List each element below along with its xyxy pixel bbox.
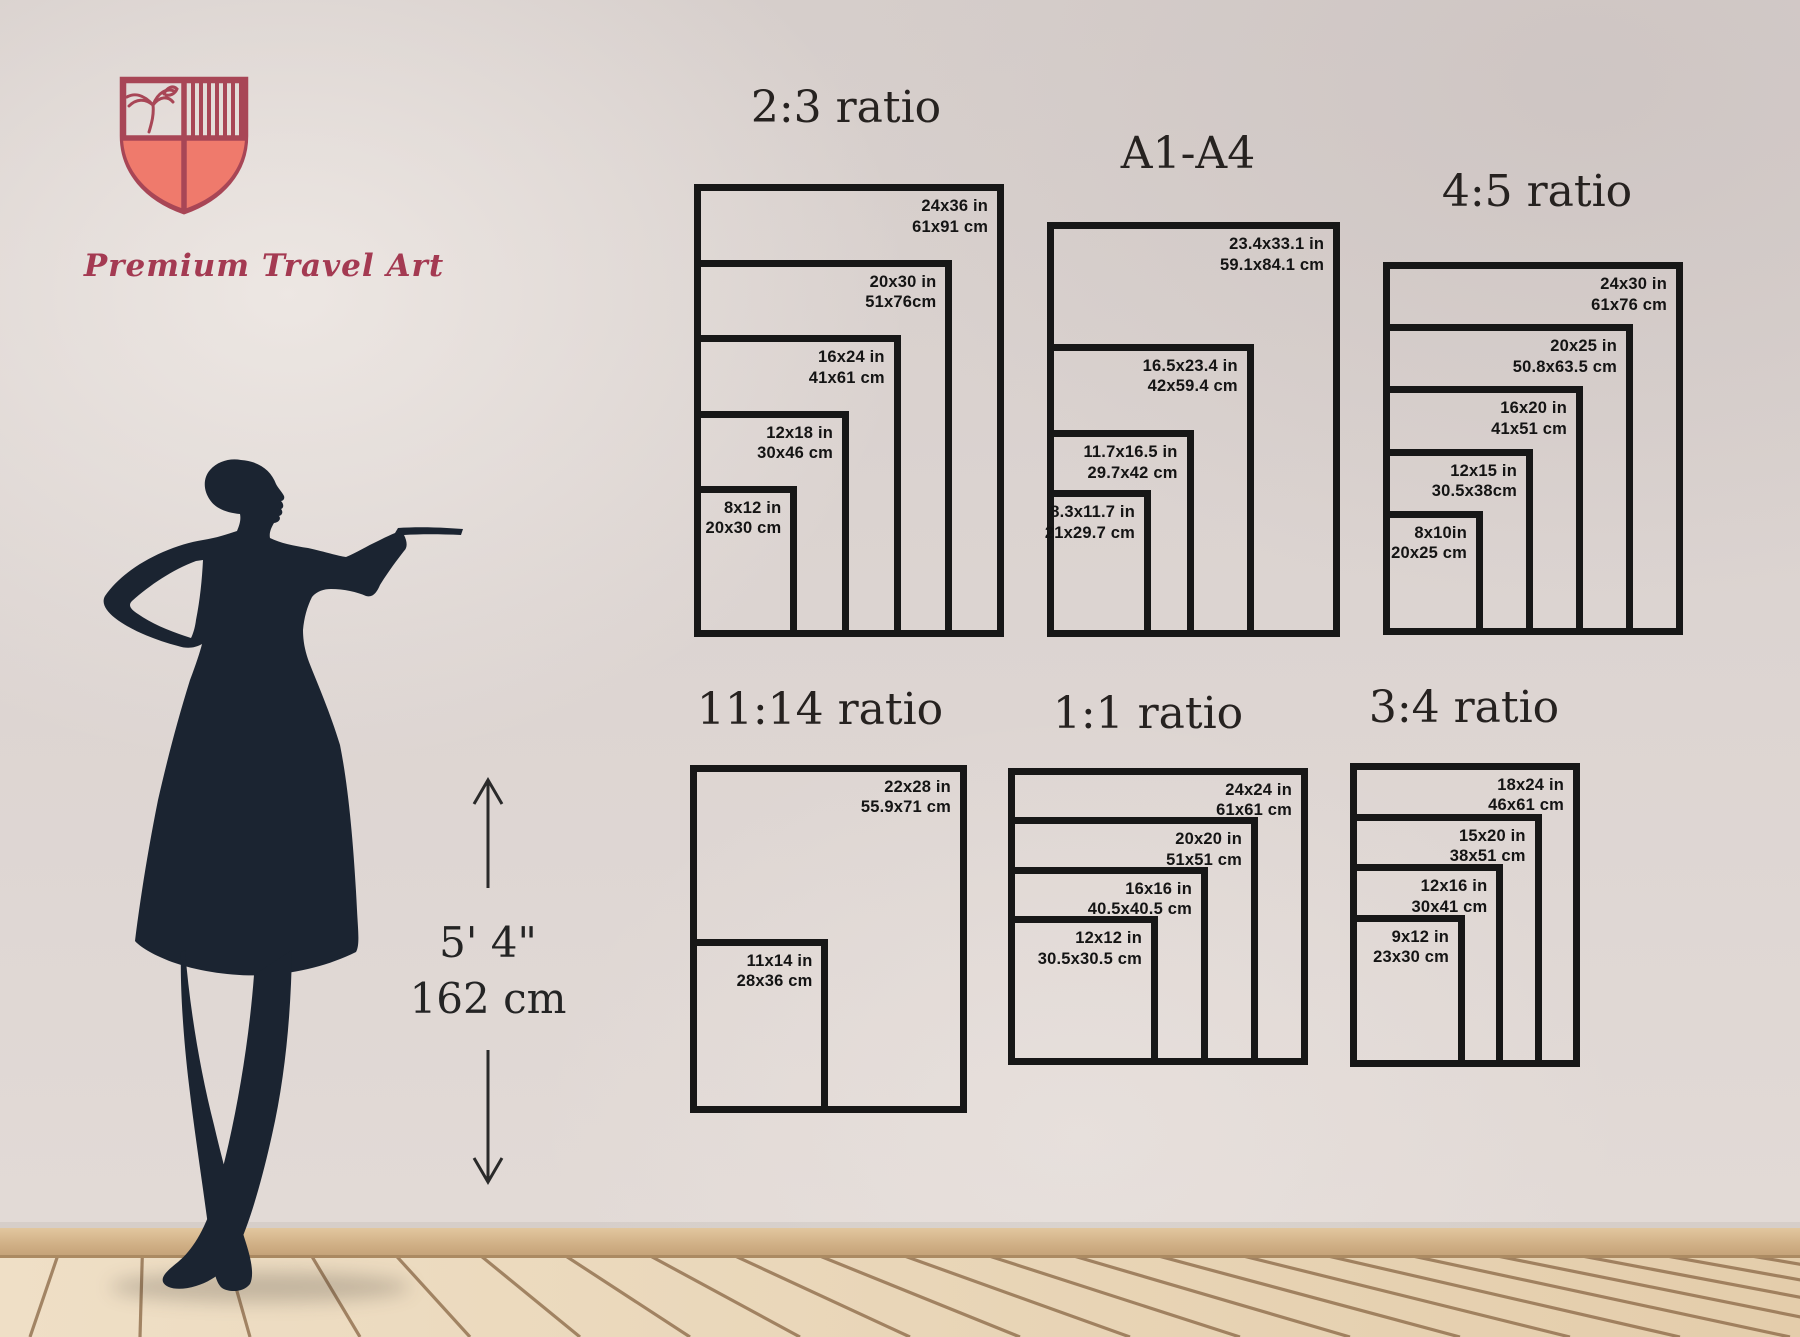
size-centimeters: 61x76 cm <box>1591 295 1667 315</box>
size-label: 20x25 in50.8x63.5 cm <box>1513 336 1617 377</box>
size-label: 18x24 in46x61 cm <box>1488 775 1564 816</box>
size-inches: 20x25 in <box>1513 336 1617 356</box>
size-inches: 11x14 in <box>737 951 813 971</box>
group-title-ratio-1-1: 1:1 ratio <box>1053 688 1243 739</box>
size-frame-ratio-4-5-8x10in: 8x10in20x25 cm <box>1383 511 1483 635</box>
size-inches: 16x16 in <box>1088 879 1192 899</box>
size-label: 24x36 in61x91 cm <box>912 196 988 237</box>
size-label: 22x28 in55.9x71 cm <box>861 777 951 818</box>
shield-stripes <box>193 82 241 136</box>
size-centimeters: 55.9x71 cm <box>861 797 951 817</box>
size-centimeters: 20x25 cm <box>1391 543 1467 563</box>
brand-name: Premium Travel Art <box>44 248 484 284</box>
brand-shield-logo <box>112 72 257 222</box>
size-centimeters: 20x30 cm <box>705 518 781 538</box>
size-label: 12x12 in30.5x30.5 cm <box>1038 928 1142 969</box>
size-centimeters: 41x51 cm <box>1491 419 1567 439</box>
height-arrow-up-icon <box>474 780 502 888</box>
group-title-ratio-3-4: 3:4 ratio <box>1369 682 1559 733</box>
size-inches: 20x20 in <box>1166 829 1242 849</box>
brand-logo: Premium Travel Art <box>112 72 412 222</box>
size-centimeters: 30.5x38cm <box>1432 481 1517 501</box>
size-inches: 8x12 in <box>705 498 781 518</box>
size-label: 24x30 in61x76 cm <box>1591 274 1667 315</box>
group-title-ratio-11-14: 11:14 ratio <box>697 684 943 735</box>
woman-body <box>104 459 463 975</box>
size-label: 16.5x23.4 in42x59.4 cm <box>1143 356 1238 397</box>
size-label: 16x16 in40.5x40.5 cm <box>1088 879 1192 920</box>
size-inches: 16x24 in <box>809 347 885 367</box>
size-inches: 24x30 in <box>1591 274 1667 294</box>
woman-silhouette <box>0 440 500 1337</box>
size-label: 9x12 in23x30 cm <box>1373 927 1449 968</box>
size-label: 24x24 in61x61 cm <box>1216 780 1292 821</box>
group-title-ratio-4-5: 4:5 ratio <box>1442 166 1632 217</box>
size-inches: 8.3x11.7 in <box>1045 502 1135 522</box>
size-label: 16x20 in41x51 cm <box>1491 398 1567 439</box>
size-centimeters: 61x91 cm <box>912 217 988 237</box>
size-label: 8x12 in20x30 cm <box>705 498 781 539</box>
size-label: 8x10in20x25 cm <box>1391 523 1467 564</box>
size-inches: 23.4x33.1 in <box>1220 234 1324 254</box>
size-frame-ratio-1-1-12x12in: 12x12 in30.5x30.5 cm <box>1008 916 1158 1065</box>
size-inches: 12x15 in <box>1432 461 1517 481</box>
size-centimeters: 30.5x30.5 cm <box>1038 949 1142 969</box>
size-inches: 22x28 in <box>861 777 951 797</box>
group-title-ratio-2-3: 2:3 ratio <box>751 82 941 133</box>
size-frame-ratio-2-3-8x12in: 8x12 in20x30 cm <box>694 486 797 637</box>
size-centimeters: 50.8x63.5 cm <box>1513 357 1617 377</box>
size-label: 12x18 in30x46 cm <box>757 423 833 464</box>
size-label: 11x14 in28x36 cm <box>737 951 813 992</box>
size-inches: 16.5x23.4 in <box>1143 356 1238 376</box>
size-centimeters: 29.7x42 cm <box>1083 463 1177 483</box>
size-label: 8.3x11.7 in21x29.7 cm <box>1045 502 1135 543</box>
size-label: 20x20 in51x51 cm <box>1166 829 1242 870</box>
size-centimeters: 42x59.4 cm <box>1143 376 1238 396</box>
size-inches: 9x12 in <box>1373 927 1449 947</box>
size-label: 23.4x33.1 in59.1x84.1 cm <box>1220 234 1324 275</box>
size-inches: 15x20 in <box>1450 826 1526 846</box>
size-inches: 16x20 in <box>1491 398 1567 418</box>
size-frame-ratio-11-14-11x14in: 11x14 in28x36 cm <box>690 939 828 1113</box>
size-centimeters: 41x61 cm <box>809 368 885 388</box>
size-centimeters: 30x46 cm <box>757 443 833 463</box>
size-centimeters: 51x76cm <box>865 292 936 312</box>
palm-tree-icon <box>127 87 177 132</box>
size-inches: 24x24 in <box>1216 780 1292 800</box>
size-label: 11.7x16.5 in29.7x42 cm <box>1083 442 1177 483</box>
size-frame-ratio-3-4-9x12in: 9x12 in23x30 cm <box>1350 915 1465 1067</box>
size-inches: 20x30 in <box>865 272 936 292</box>
size-label: 15x20 in38x51 cm <box>1450 826 1526 867</box>
size-centimeters: 28x36 cm <box>737 971 813 991</box>
size-label: 16x24 in41x61 cm <box>809 347 885 388</box>
size-label: 20x30 in51x76cm <box>865 272 936 313</box>
size-inches: 12x18 in <box>757 423 833 443</box>
size-label: 12x16 in30x41 cm <box>1411 876 1487 917</box>
height-arrow-down-icon <box>474 1050 502 1182</box>
size-centimeters: 21x29.7 cm <box>1045 523 1135 543</box>
size-inches: 11.7x16.5 in <box>1083 442 1177 462</box>
size-inches: 12x16 in <box>1411 876 1487 896</box>
size-centimeters: 59.1x84.1 cm <box>1220 255 1324 275</box>
size-frame-a-series-8.3x11.7in: 8.3x11.7 in21x29.7 cm <box>1047 490 1151 637</box>
size-inches: 8x10in <box>1391 523 1467 543</box>
scene: Premium Travel Art 5' 4" 162 cm 2:3 rati… <box>0 0 1800 1337</box>
size-inches: 18x24 in <box>1488 775 1564 795</box>
size-label: 12x15 in30.5x38cm <box>1432 461 1517 502</box>
woman-legs <box>163 950 292 1291</box>
height-imperial: 5' 4" <box>382 918 594 967</box>
size-inches: 12x12 in <box>1038 928 1142 948</box>
height-metric: 162 cm <box>382 974 594 1023</box>
group-title-a-series: A1-A4 <box>1121 128 1255 179</box>
size-inches: 24x36 in <box>912 196 988 216</box>
size-centimeters: 23x30 cm <box>1373 947 1449 967</box>
